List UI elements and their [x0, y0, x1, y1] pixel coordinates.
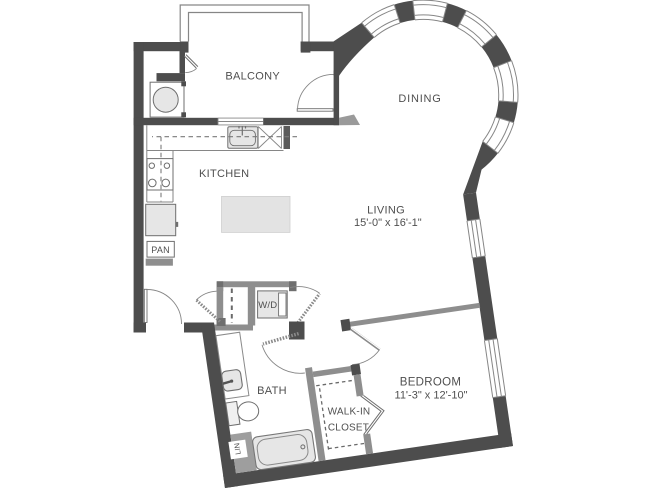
svg-text:LIVING: LIVING [367, 204, 405, 216]
svg-text:KITCHEN: KITCHEN [199, 168, 249, 180]
svg-text:BATH: BATH [257, 385, 287, 397]
svg-text:LIN: LIN [232, 442, 243, 455]
svg-text:WALK-IN: WALK-IN [328, 407, 371, 418]
svg-text:DINING: DINING [398, 93, 441, 105]
svg-text:PAN: PAN [151, 245, 170, 255]
svg-text:BALCONY: BALCONY [225, 71, 280, 83]
svg-text:W/D: W/D [258, 300, 277, 311]
svg-text:BEDROOM: BEDROOM [400, 376, 462, 388]
svg-text:11'-3" x 12'-10": 11'-3" x 12'-10" [395, 389, 468, 401]
svg-text:CLOSET: CLOSET [328, 423, 369, 434]
svg-text:15'-0" x 16'-1": 15'-0" x 16'-1" [354, 217, 422, 229]
